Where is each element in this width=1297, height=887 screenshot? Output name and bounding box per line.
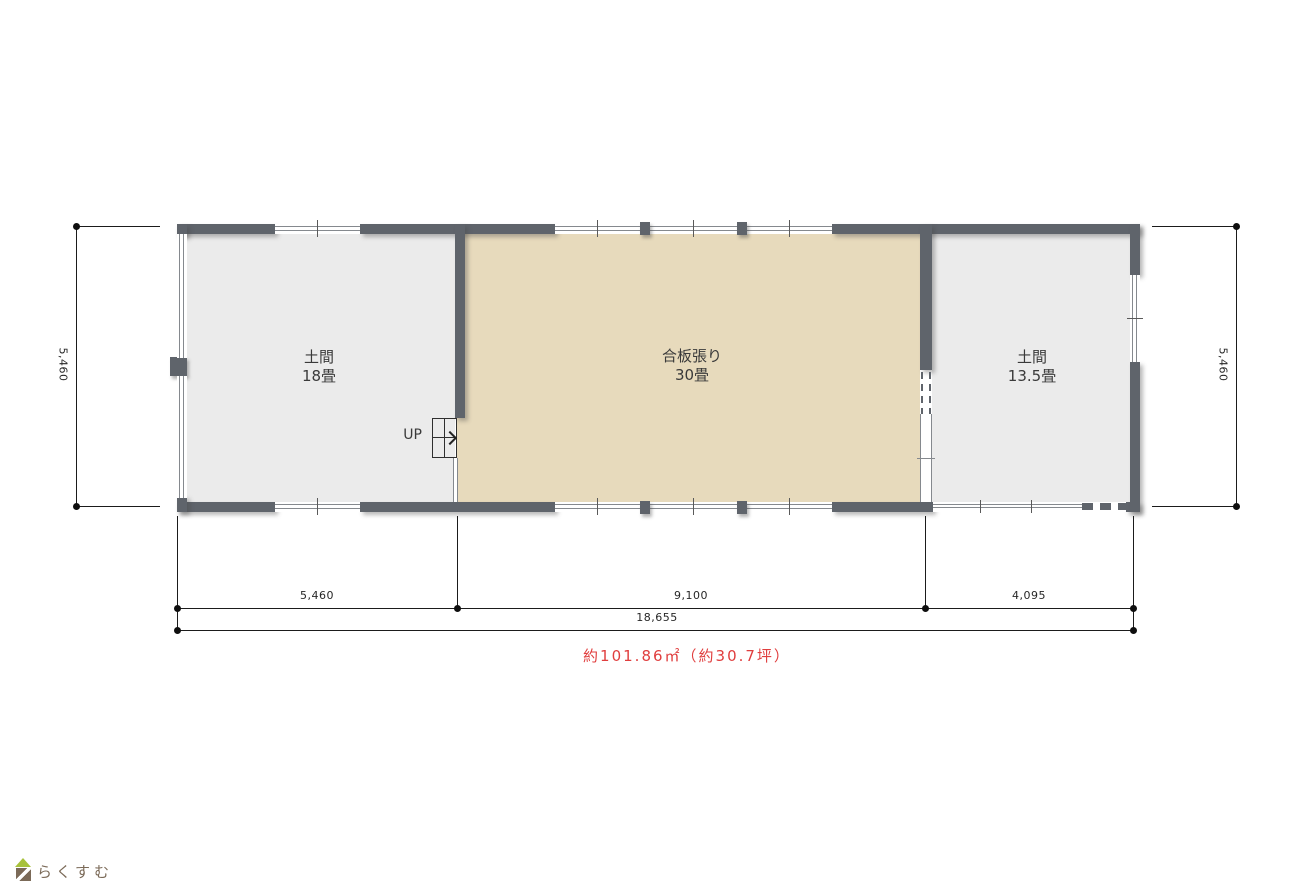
dim-bottom-total-label: 18,655 [587, 611, 727, 624]
divider-dashed-line-left [921, 372, 923, 414]
room-right-name: 土間 [972, 348, 1092, 367]
wall-right-bottom [1130, 362, 1140, 512]
room-right-size: 13.5畳 [972, 367, 1092, 386]
logo-text: らくすむ [37, 861, 113, 882]
window-top-center-2 [650, 224, 737, 234]
room-center-size: 30畳 [632, 366, 752, 385]
window-top-center-3 [747, 224, 832, 234]
opening-bottom-right-room [933, 502, 1082, 512]
dim-endpoint-dot [1130, 605, 1137, 612]
room-left-name: 土間 [259, 348, 379, 367]
house-icon-body [16, 868, 31, 881]
window-post-top-1 [640, 222, 650, 235]
dim-bottom-seg1-label: 5,460 [267, 589, 367, 602]
window-post-bottom-1 [640, 501, 650, 514]
dim-right-label: 5,460 [1217, 330, 1230, 400]
dim-right-ext-bottom [1152, 506, 1236, 507]
stair-divider-thin-line [453, 458, 458, 502]
dim-endpoint-dot [1233, 223, 1240, 230]
dim-endpoint-dot [1233, 503, 1240, 510]
wall-right-top [1130, 224, 1140, 275]
dim-left-ext-top [76, 226, 160, 227]
wall-divider-center-right [920, 224, 932, 370]
dim-left-vline [76, 226, 77, 506]
stairs-up-label: UP [390, 427, 422, 443]
dim-bottom-seg3-label: 4,095 [979, 589, 1079, 602]
room-label-center: 合板張り 30畳 [632, 347, 752, 385]
room-left-size: 18畳 [259, 367, 379, 386]
dim-ext-x457 [457, 516, 458, 608]
window-right-wall [1130, 275, 1140, 362]
divider-channel-tick [917, 458, 935, 459]
dim-endpoint-dot [73, 223, 80, 230]
window-bottom-center-3 [747, 502, 832, 512]
dim-endpoint-dot [174, 605, 181, 612]
window-post-top-2 [737, 222, 747, 235]
dim-right-ext-top [1152, 226, 1236, 227]
window-left-wall-upper [177, 234, 187, 358]
window-top-center-1 [555, 224, 640, 234]
dim-ext-x177 [177, 516, 178, 631]
dim-bottom-segments-line [177, 608, 1133, 609]
dim-endpoint-dot [922, 605, 929, 612]
wall-left-bottom-corner [177, 496, 187, 512]
dim-ext-x925 [925, 516, 926, 608]
dim-left-ext-bottom [76, 506, 160, 507]
dim-endpoint-dot [1130, 627, 1137, 634]
dim-endpoint-dot [174, 627, 181, 634]
window-bottom-center-2 [650, 502, 737, 512]
floor-plan-canvas: UP 土間 18畳 合板張り 30畳 土間 13.5畳 5,460 5,460 … [0, 0, 1297, 887]
window-post-bottom-2 [737, 501, 747, 514]
wall-divider-left-center [455, 224, 465, 418]
room-label-left: 土間 18畳 [259, 348, 379, 386]
stairs-arrow-icon [443, 431, 457, 445]
wall-top-segment-1 [177, 224, 275, 234]
wall-top-segment-3 [832, 224, 1140, 234]
stairs [432, 418, 457, 458]
dim-bottom-total-line [177, 630, 1133, 631]
dim-bottom-seg2-label: 9,100 [641, 589, 741, 602]
window-bottom-center-1 [555, 502, 640, 512]
dim-endpoint-dot [73, 503, 80, 510]
divider-dashed-line-right [929, 372, 931, 414]
wall-bottom-segment-2 [360, 502, 555, 512]
window-top-left-room [275, 224, 360, 234]
house-icon [15, 858, 31, 867]
wall-bottom-segment-3 [832, 502, 933, 512]
dim-left-label: 5,460 [57, 330, 70, 400]
door-dashed-bottom-right [1082, 503, 1126, 510]
dim-ext-x1133 [1133, 516, 1134, 631]
window-left-wall-lower [177, 376, 187, 498]
area-note: 約101.86㎡（約30.7坪） [487, 645, 887, 666]
dim-endpoint-dot [454, 605, 461, 612]
wall-bottom-segment-1 [177, 502, 275, 512]
dim-right-vline [1236, 226, 1237, 506]
wall-left-center-post [170, 357, 187, 376]
room-center-name: 合板張り [632, 347, 752, 366]
room-label-right: 土間 13.5畳 [972, 348, 1092, 386]
window-bottom-left-room [275, 502, 360, 512]
